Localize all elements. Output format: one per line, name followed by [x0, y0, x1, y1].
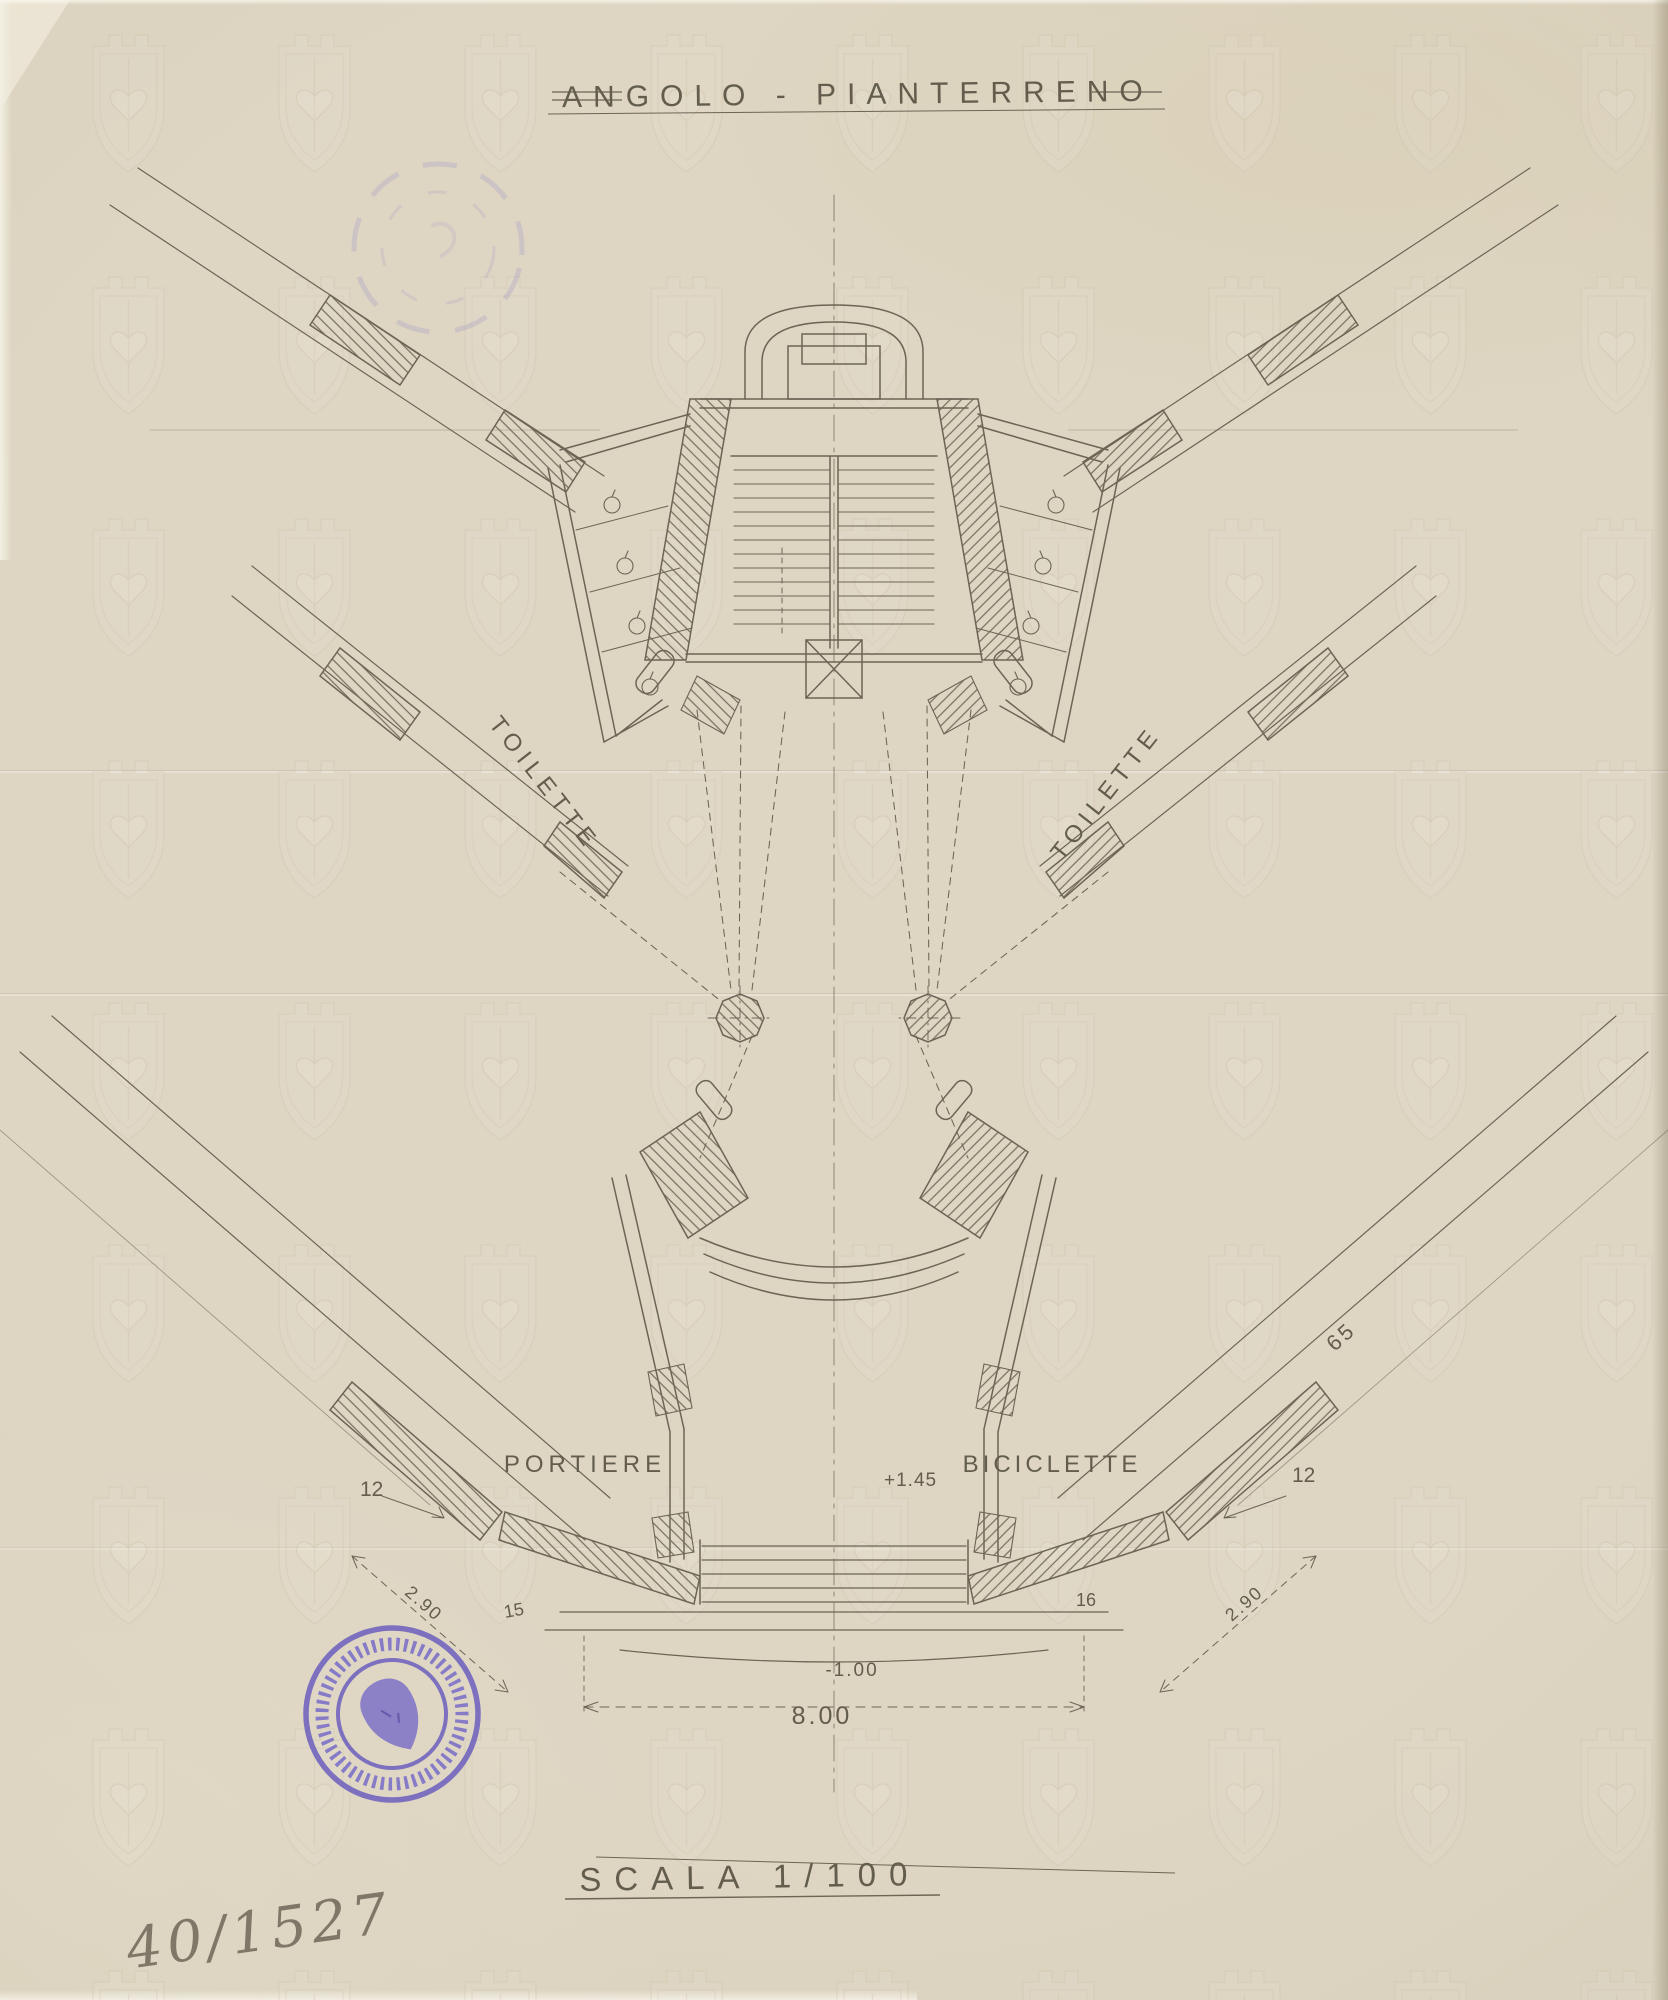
room-label-biciclette: BICICLETTE — [963, 1451, 1142, 1478]
level-mark-high: +1.45 — [884, 1470, 937, 1491]
dim-entrance-width: 8.00 — [792, 1702, 853, 1730]
dim-wall-right: 12 — [1292, 1464, 1315, 1487]
level-mark-low: -1.00 — [825, 1660, 878, 1681]
drawing-title: ANGOLO - PIANTERRENO — [562, 75, 1154, 114]
dim-wall-left: 12 — [360, 1478, 383, 1501]
floor-plan-drawing: ANGOLO - PIANTERRENO TOILETTE TOILETTE P… — [0, 0, 1668, 2000]
dim-step-left: 15 — [502, 1599, 525, 1622]
document-page: ANGOLO - PIANTERRENO TOILETTE TOILETTE P… — [0, 0, 1668, 2000]
scale-label: SCALA 1/100 — [579, 1855, 921, 1898]
room-label-portiere: PORTIERE — [504, 1451, 666, 1478]
dim-step-right: 16 — [1076, 1590, 1096, 1610]
